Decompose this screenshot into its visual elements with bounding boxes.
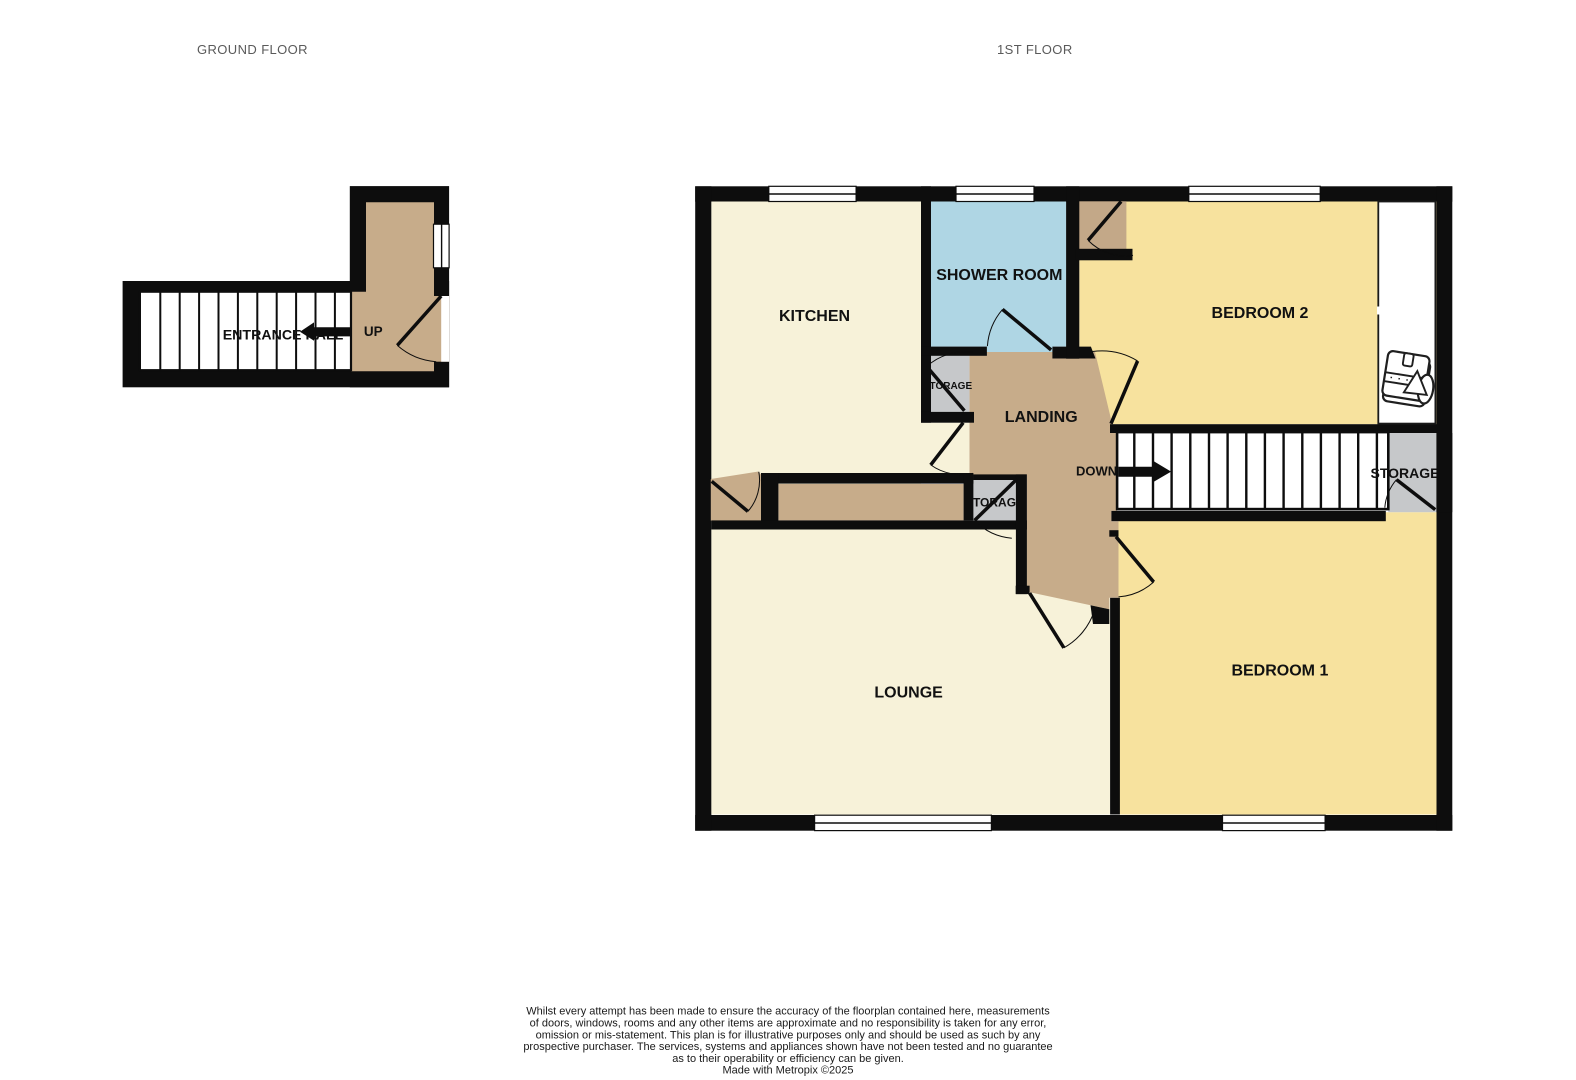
- svg-text:Made with Metropix ©2025: Made with Metropix ©2025: [722, 1065, 853, 1077]
- svg-text:GROUND FLOOR: GROUND FLOOR: [197, 42, 308, 57]
- svg-text:Whilst every attempt has been: Whilst every attempt has been made to en…: [526, 1006, 1050, 1018]
- svg-text:DOWN: DOWN: [1076, 464, 1117, 479]
- svg-text:LANDING: LANDING: [1005, 409, 1078, 426]
- svg-text:of doors, windows, rooms and a: of doors, windows, rooms and any other i…: [530, 1018, 1047, 1030]
- svg-text:LOUNGE: LOUNGE: [874, 685, 943, 702]
- svg-text:as to their operability or eff: as to their operability or efficiency ca…: [672, 1053, 904, 1065]
- svg-text:1ST FLOOR: 1ST FLOOR: [997, 42, 1073, 57]
- svg-text:omission or mis-statement. Thi: omission or mis-statement. This plan is …: [536, 1029, 1041, 1041]
- svg-text:BEDROOM 2: BEDROOM 2: [1212, 305, 1309, 322]
- svg-text:STORAGE: STORAGE: [1371, 465, 1440, 481]
- svg-text:SHOWER ROOM: SHOWER ROOM: [936, 267, 1062, 284]
- svg-text:prospective purchaser. The ser: prospective purchaser. The services, sys…: [523, 1041, 1052, 1053]
- svg-text:BEDROOM 1: BEDROOM 1: [1231, 663, 1328, 680]
- svg-text:UP: UP: [364, 324, 383, 339]
- svg-text:KITCHEN: KITCHEN: [779, 308, 850, 325]
